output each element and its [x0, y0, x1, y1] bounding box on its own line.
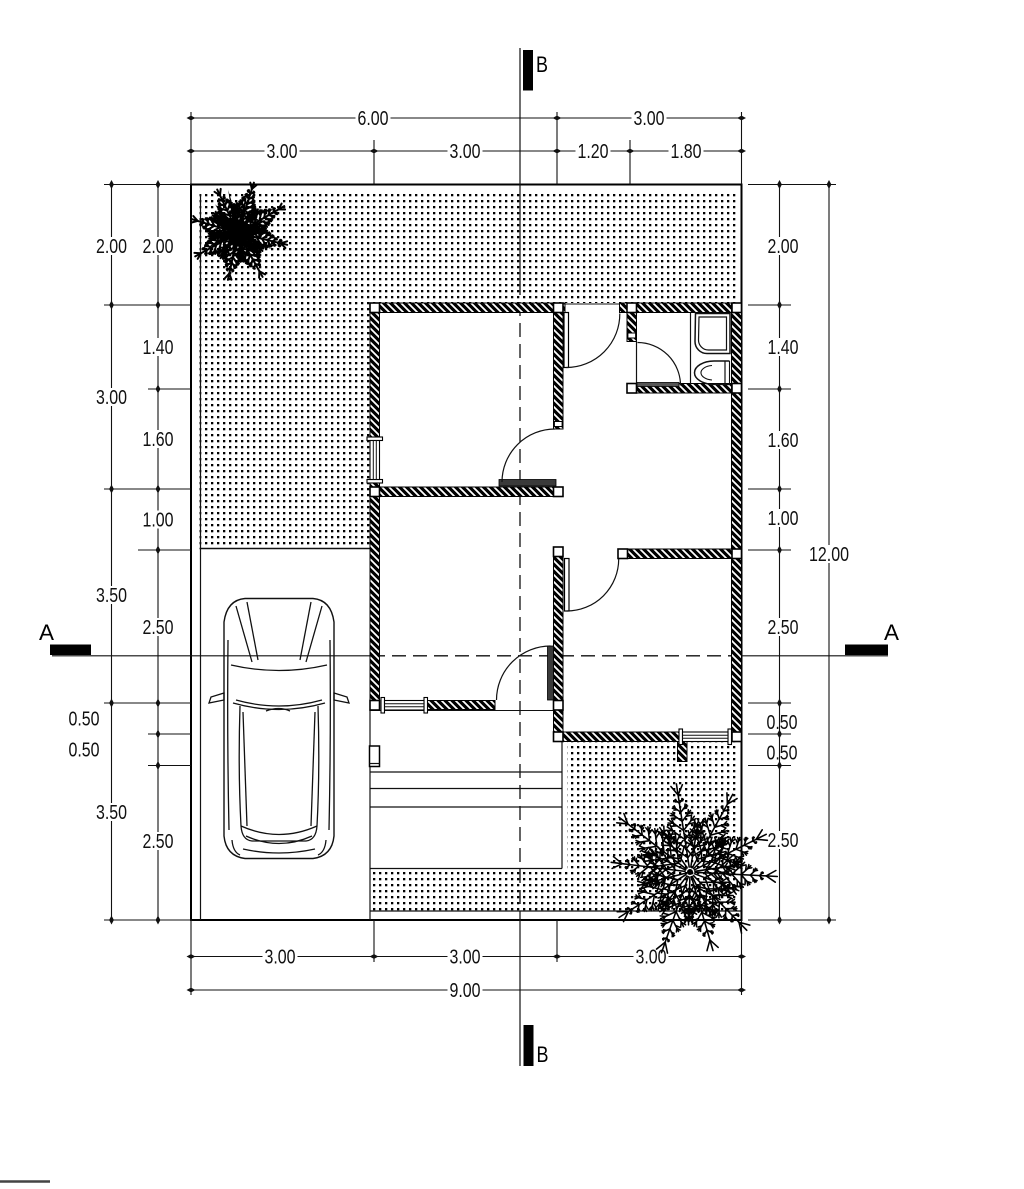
svg-text:1.00: 1.00 — [143, 510, 174, 532]
svg-text:2.00: 2.00 — [143, 236, 174, 258]
svg-text:0.50: 0.50 — [69, 740, 100, 762]
svg-text:3.50: 3.50 — [96, 802, 127, 824]
svg-text:1.40: 1.40 — [768, 337, 799, 359]
svg-text:A: A — [39, 620, 54, 645]
svg-text:3.00: 3.00 — [267, 141, 298, 163]
svg-text:6.00: 6.00 — [358, 108, 389, 130]
svg-text:1.00: 1.00 — [768, 508, 799, 530]
svg-text:9.00: 9.00 — [450, 980, 481, 1002]
svg-text:2.00: 2.00 — [96, 236, 127, 258]
svg-text:3.00: 3.00 — [265, 947, 296, 969]
svg-text:3.00: 3.00 — [450, 141, 481, 163]
svg-text:B: B — [537, 1042, 549, 1067]
svg-text:1.60: 1.60 — [768, 430, 799, 452]
svg-text:2.50: 2.50 — [768, 830, 799, 852]
svg-text:0.50: 0.50 — [767, 743, 798, 765]
svg-text:3.00: 3.00 — [96, 387, 127, 409]
svg-text:0.50: 0.50 — [69, 709, 100, 731]
svg-text:2.50: 2.50 — [143, 617, 174, 639]
svg-text:1.40: 1.40 — [143, 337, 174, 359]
svg-text:12.00: 12.00 — [809, 544, 849, 566]
svg-text:B: B — [536, 52, 548, 77]
svg-text:1.20: 1.20 — [578, 141, 609, 163]
svg-text:3.50: 3.50 — [96, 585, 127, 607]
svg-text:1.80: 1.80 — [671, 141, 702, 163]
svg-text:3.00: 3.00 — [450, 947, 481, 969]
svg-text:2.50: 2.50 — [768, 617, 799, 639]
svg-text:2.00: 2.00 — [768, 236, 799, 258]
svg-text:0.50: 0.50 — [767, 712, 798, 734]
svg-text:A: A — [884, 620, 899, 645]
svg-text:1.60: 1.60 — [143, 429, 174, 451]
svg-text:2.50: 2.50 — [143, 831, 174, 853]
svg-text:3.00: 3.00 — [634, 108, 665, 130]
